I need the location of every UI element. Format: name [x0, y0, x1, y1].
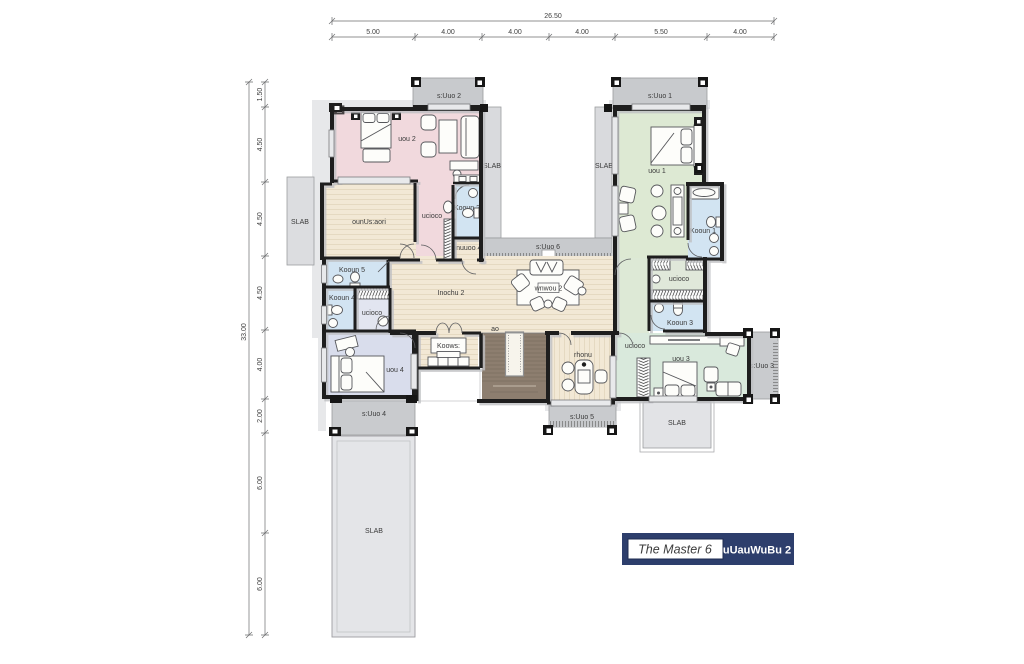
svg-text:s:Uuo 1: s:Uuo 1	[648, 93, 672, 100]
svg-text:6.00: 6.00	[257, 476, 264, 490]
svg-text:inuuoo 4: inuuoo 4	[455, 245, 482, 252]
svg-text:Koows:: Koows:	[437, 343, 460, 350]
svg-text:Kooun 4: Kooun 4	[329, 295, 355, 302]
svg-text:ucioco: ucioco	[669, 276, 689, 283]
svg-text:Inochu 2: Inochu 2	[438, 290, 465, 297]
svg-text:5.00: 5.00	[366, 29, 380, 36]
svg-text:SLAB: SLAB	[291, 219, 309, 226]
svg-text:uou 4: uou 4	[386, 367, 404, 374]
svg-text:ounUs:aori: ounUs:aori	[352, 219, 386, 226]
svg-text:uUauWuBu 2: uUauWuBu 2	[723, 545, 791, 557]
svg-text:SLAB: SLAB	[483, 163, 501, 170]
svg-text:4.50: 4.50	[257, 138, 264, 152]
svg-text:ao: ao	[491, 326, 499, 333]
svg-text:uou 1: uou 1	[648, 168, 666, 175]
svg-text:rhonu: rhonu	[574, 352, 592, 359]
svg-text:s:Uuo 4: s:Uuo 4	[362, 411, 386, 418]
svg-text:SLAB: SLAB	[595, 163, 613, 170]
svg-text:ucioco: ucioco	[362, 310, 382, 317]
svg-text:4.50: 4.50	[257, 286, 264, 300]
svg-text:s:Uuo 6: s:Uuo 6	[536, 244, 560, 251]
svg-text:4.00: 4.00	[257, 358, 264, 372]
svg-text:wnwou 2: wnwou 2	[534, 286, 563, 293]
svg-text:SLAB: SLAB	[365, 528, 383, 535]
svg-text:2.00: 2.00	[257, 409, 264, 423]
svg-text:uou 2: uou 2	[398, 136, 416, 143]
svg-text:26.50: 26.50	[544, 13, 562, 20]
svg-text:4.00: 4.00	[575, 29, 589, 36]
svg-text:SLAB: SLAB	[668, 420, 686, 427]
svg-text:Kooun 3: Kooun 3	[667, 320, 693, 327]
svg-text:6.00: 6.00	[257, 577, 264, 591]
svg-text:4.00: 4.00	[733, 29, 747, 36]
svg-text:1.50: 1.50	[257, 88, 264, 102]
svg-text:s:Uuo 2: s:Uuo 2	[437, 93, 461, 100]
svg-text:4.00: 4.00	[441, 29, 455, 36]
svg-text:ucioco: ucioco	[625, 343, 645, 350]
svg-text:4.00: 4.00	[508, 29, 522, 36]
svg-text:5.50: 5.50	[654, 29, 668, 36]
svg-text:s:Uuo 3: s:Uuo 3	[750, 363, 774, 370]
svg-text:33.00: 33.00	[241, 323, 248, 341]
svg-text:s:Uuo 5: s:Uuo 5	[570, 414, 594, 421]
svg-text:ucioco: ucioco	[422, 213, 442, 220]
svg-text:4.50: 4.50	[257, 212, 264, 226]
svg-text:The Master 6: The Master 6	[638, 543, 712, 557]
